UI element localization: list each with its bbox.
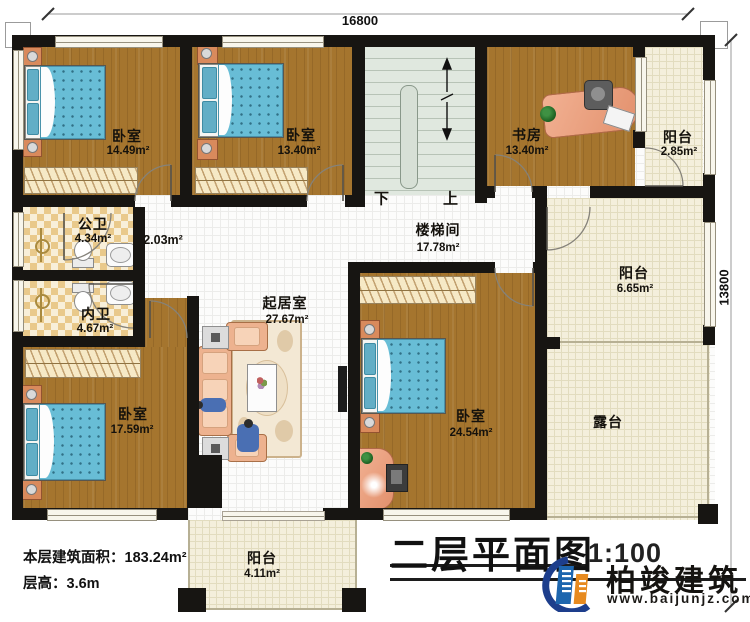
bed-icon (24, 65, 106, 140)
floor-area-note: 本层建筑面积：183.24m² (23, 546, 187, 567)
computer-icon (386, 464, 408, 492)
nightstand-icon (22, 480, 42, 500)
nightstand-icon (360, 413, 380, 433)
dimension-tick (682, 8, 694, 20)
window (13, 212, 24, 267)
bed-icon (361, 338, 446, 414)
window (704, 222, 716, 327)
wardrobe-icon (358, 276, 476, 304)
wall (181, 195, 307, 207)
wall (535, 198, 547, 520)
room-label-living: 起居室 (263, 293, 308, 313)
dimension-right-label: 13800 (717, 267, 732, 309)
window (13, 280, 24, 332)
floor-height-note: 层高：3.6m (23, 572, 100, 593)
pillow (364, 343, 376, 375)
plate-icon (27, 142, 38, 153)
balcony-column (178, 588, 206, 612)
room-area-bedroom-br: 24.54m² (450, 427, 493, 439)
room-area-study: 13.40m² (506, 145, 549, 157)
room-label-balcony-b: 阳台 (247, 548, 277, 568)
nightstand-icon (197, 44, 218, 65)
sofa-icon (198, 346, 232, 436)
room-area-stair-hall: 17.78m² (417, 242, 460, 254)
pillow (202, 101, 217, 133)
room-label-bedroom-tl: 卧室 (112, 126, 142, 146)
rug-pattern (277, 330, 293, 352)
terrace-edge-bottom (547, 516, 708, 518)
nightstand-icon (22, 385, 42, 405)
plate-icon (364, 417, 375, 428)
wall (475, 35, 487, 203)
monitor-screen (391, 470, 402, 484)
window (383, 509, 510, 521)
person-icon (237, 424, 259, 452)
window (47, 509, 157, 521)
wall (348, 262, 495, 273)
wall (703, 325, 715, 345)
armchair-cushion (234, 327, 260, 346)
wardrobe-icon (24, 167, 138, 194)
room-area-bedroom-tm: 13.40m² (278, 145, 321, 157)
coffee-table-icon (247, 364, 277, 412)
wall (703, 35, 715, 80)
room-area-balcony-r: 6.65m² (617, 283, 653, 295)
room-area-living: 27.67m² (266, 314, 309, 326)
towel-ring-icon (35, 239, 50, 254)
window (222, 36, 324, 48)
wall (532, 186, 547, 198)
plan-title: 二层平面图 (390, 524, 595, 579)
room-label-balcony-tr: 阳台 (663, 127, 693, 147)
wall-column (547, 337, 560, 349)
terrace-parapet (547, 341, 707, 343)
tv-icon (338, 366, 347, 412)
rug-pattern (275, 420, 293, 442)
armchair-icon (226, 322, 268, 351)
room-area-private-bath: 4.67m² (77, 323, 113, 335)
pillow (26, 443, 38, 476)
sink-icon (106, 281, 135, 305)
plate-icon (26, 389, 37, 400)
nightstand-icon (23, 47, 42, 66)
side-table-icon (202, 326, 229, 349)
room-label-bedroom-bl: 卧室 (118, 404, 148, 424)
room-area-bedroom-tl: 14.49m² (107, 145, 150, 157)
wall (352, 35, 365, 207)
wall (633, 130, 645, 148)
plate-icon (201, 48, 212, 59)
wall (475, 186, 495, 198)
room-label-bedroom-tm: 卧室 (286, 125, 316, 145)
terrace-edge-right (707, 345, 709, 517)
plate-icon (26, 484, 37, 495)
wall (590, 186, 715, 198)
wall (171, 195, 181, 207)
sliding-door (222, 511, 325, 521)
wall (348, 262, 360, 508)
window (635, 57, 647, 132)
sofa-cushion (202, 352, 228, 374)
towel-ring-icon (35, 294, 50, 309)
window (13, 50, 24, 150)
wall (12, 195, 135, 207)
sink-basin (110, 247, 131, 263)
room-area-bedroom-bl: 17.59m² (111, 424, 154, 436)
stair-down-label: 下 (374, 188, 390, 209)
sink-icon (106, 243, 135, 267)
pillow (27, 69, 39, 101)
dimension-top-label: 16800 (342, 13, 378, 28)
room-area-public-bath: 4.34m² (75, 233, 111, 245)
sink-basin (110, 285, 131, 301)
balcony-column (342, 588, 366, 612)
wall (345, 195, 365, 207)
plate-icon (27, 51, 38, 62)
pillow (202, 67, 217, 99)
floor-stairwell (365, 47, 475, 195)
plate-icon (364, 324, 375, 335)
room-label-balcony-r: 阳台 (619, 263, 649, 283)
room-area-balcony-b: 4.11m² (244, 568, 280, 580)
room-label-study: 书房 (512, 125, 542, 145)
room-label-bedroom-br: 卧室 (456, 406, 486, 426)
wall (12, 336, 145, 347)
room-area-balcony-tr: 2.85m² (661, 146, 697, 158)
table-item (211, 444, 220, 453)
floor-balcony-top-right (645, 47, 703, 186)
room-label-terrace: 露台 (593, 412, 623, 432)
brand-website: www.baijunjz.com (607, 591, 750, 606)
nightstand-icon (23, 138, 42, 157)
stair-up-label: 上 (443, 188, 459, 209)
pillow (26, 408, 38, 441)
person-icon (200, 398, 226, 412)
floor-plan-canvas: 16800 13800 卧室 14.49m² 卧室 13.40m² 书房 13.… (0, 0, 750, 622)
room-label-public-bath: 公卫 (78, 214, 108, 234)
plant-icon (361, 452, 373, 464)
nightstand-icon (360, 320, 380, 340)
bed-icon (23, 403, 106, 481)
wardrobe-icon (25, 349, 141, 378)
person-head (244, 419, 253, 428)
floor-terrace (547, 198, 710, 520)
wall (180, 35, 192, 207)
wardrobe-icon (195, 167, 308, 194)
wall (533, 262, 547, 273)
lamp-glow (361, 472, 387, 498)
window (55, 36, 163, 48)
wall (188, 455, 222, 508)
window (704, 80, 716, 175)
balcony-bottom-edge (188, 608, 357, 610)
plant-icon (540, 106, 556, 122)
pillow (364, 377, 376, 409)
wall-column (698, 504, 718, 524)
room-label-stair-hall: 楼梯间 (416, 220, 461, 240)
chair-seat (591, 87, 605, 101)
wall (633, 35, 645, 57)
floor-bedroom-bl-door (145, 298, 187, 347)
table-item (211, 333, 220, 342)
pillow (27, 103, 39, 135)
corridor-area-label: 2.03m² (143, 233, 183, 247)
plate-icon (201, 143, 212, 154)
nightstand-icon (197, 139, 218, 160)
flower-icon (257, 377, 267, 389)
room-label-private-bath: 内卫 (81, 304, 111, 324)
stair-railing (400, 85, 418, 189)
bed-icon (198, 63, 284, 138)
wall (12, 270, 145, 281)
dimension-tick (42, 8, 54, 20)
